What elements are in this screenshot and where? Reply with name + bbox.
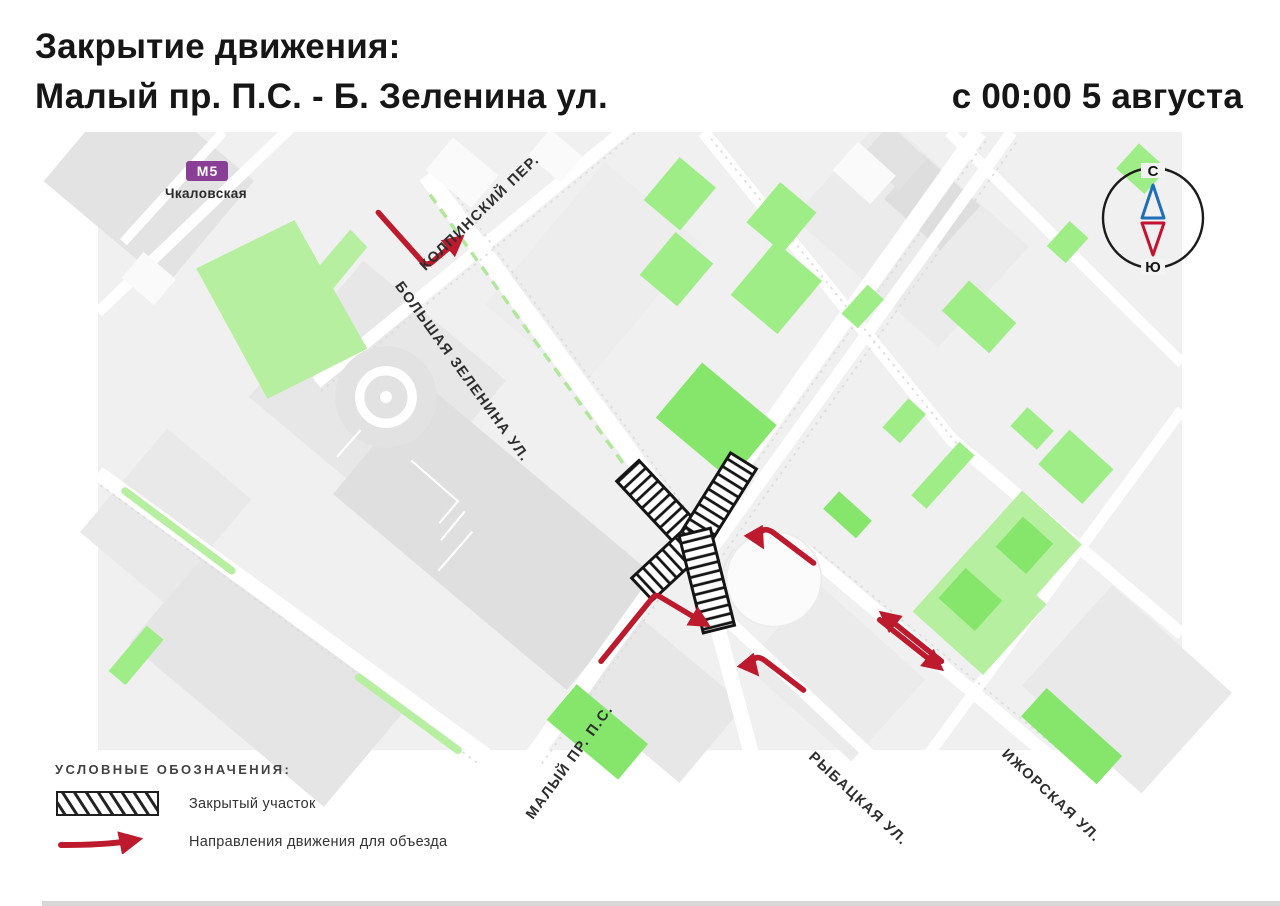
title-datetime: с 00:00 5 августа [952, 72, 1243, 122]
compass-south-arrow-icon [1142, 223, 1164, 255]
compass: С Ю [1098, 163, 1208, 275]
legend-closed-label: Закрытый участок [189, 796, 316, 812]
legend-item-closed: Закрытый участок [55, 790, 455, 817]
legend-detour-label: Направления движения для объезда [189, 834, 447, 850]
legend-item-detour: Направления движения для объезда [55, 830, 455, 854]
compass-north-arrow-icon [1142, 185, 1164, 218]
closed-section-swatch-icon [55, 790, 161, 817]
title-line-2-streets: Малый пр. П.С. - Б. Зеленина ул. [35, 72, 608, 122]
map-canvas [0, 132, 1280, 862]
metro-station-label: Чкаловская [140, 186, 272, 201]
metro-line-badge: М5 [186, 161, 228, 181]
metro-logo-icon: М [197, 163, 209, 179]
title-block: Закрытие движения: Малый пр. П.С. - Б. З… [35, 22, 1243, 122]
title-line-1: Закрытие движения: [35, 22, 1243, 72]
round-courtyard-building [335, 346, 437, 448]
map [0, 132, 1280, 862]
closure-announcement-poster: Закрытие движения: Малый пр. П.С. - Б. З… [0, 0, 1280, 906]
compass-north-label: С [1148, 163, 1159, 180]
bottom-divider-bar [42, 901, 1280, 906]
compass-south-label: Ю [1145, 259, 1160, 275]
legend: УСЛОВНЫЕ ОБОЗНАЧЕНИЯ: Закрытый участок [55, 762, 455, 854]
detour-arrow-icon [55, 830, 161, 854]
legend-header: УСЛОВНЫЕ ОБОЗНАЧЕНИЯ: [55, 762, 455, 777]
metro-line-number: 5 [209, 163, 217, 179]
